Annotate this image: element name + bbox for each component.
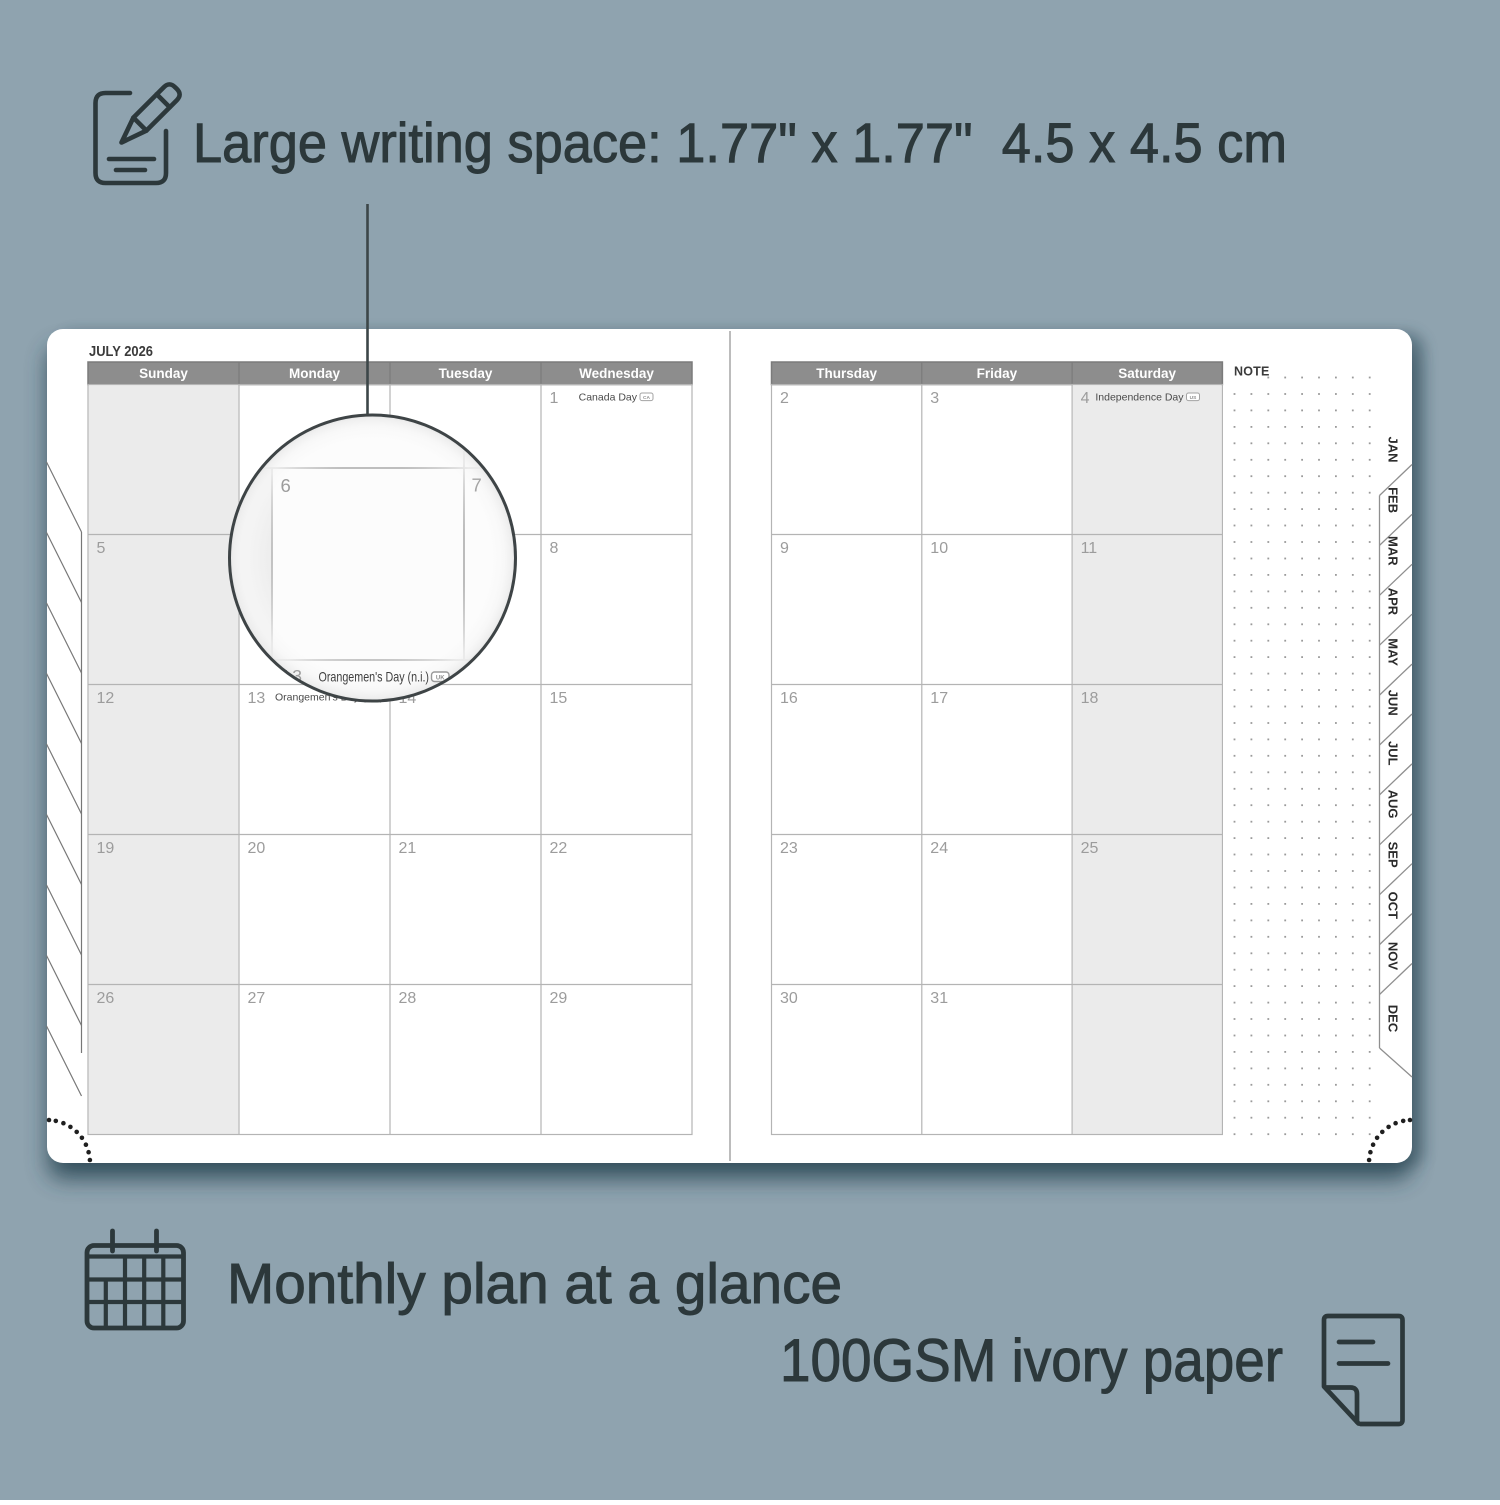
svg-text:JUN: JUN: [1386, 690, 1401, 716]
svg-text:23: 23: [780, 840, 798, 857]
svg-text:18: 18: [1081, 690, 1099, 707]
svg-text:JULY 2026: JULY 2026: [89, 343, 153, 360]
svg-text:8: 8: [550, 540, 559, 557]
svg-text:JUL: JUL: [1386, 741, 1401, 766]
svg-text:12: 12: [97, 690, 115, 707]
svg-text:Thursday: Thursday: [816, 366, 877, 381]
svg-text:Monthly plan at a glance: Monthly plan at a glance: [227, 1252, 842, 1316]
svg-text:9: 9: [780, 540, 789, 557]
svg-text:MAY: MAY: [1386, 638, 1401, 666]
svg-text:MAR: MAR: [1386, 536, 1401, 566]
svg-text:2: 2: [780, 390, 789, 407]
svg-text:NOV: NOV: [1386, 942, 1401, 971]
svg-text:CA: CA: [643, 395, 650, 401]
svg-text:Sunday: Sunday: [139, 366, 188, 381]
svg-text:Monday: Monday: [289, 366, 340, 381]
svg-text:Large writing space: 1.77" x 1: Large writing space: 1.77" x 1.77" 4.5 x…: [193, 111, 1287, 174]
svg-text:24: 24: [930, 840, 948, 857]
svg-text:17: 17: [930, 690, 948, 707]
svg-text:22: 22: [550, 840, 568, 857]
svg-text:21: 21: [399, 840, 417, 857]
svg-text:19: 19: [97, 840, 115, 857]
svg-text:US: US: [1190, 395, 1197, 401]
svg-text:SEP: SEP: [1386, 842, 1401, 868]
svg-text:29: 29: [550, 990, 568, 1007]
svg-text:27: 27: [248, 990, 266, 1007]
svg-text:4: 4: [1081, 390, 1090, 407]
svg-text:7: 7: [472, 475, 482, 496]
svg-text:Tuesday: Tuesday: [439, 366, 493, 381]
svg-text:28: 28: [399, 990, 417, 1007]
svg-text:Independence Day: Independence Day: [1095, 392, 1184, 404]
svg-text:NOTE: NOTE: [1234, 365, 1270, 379]
svg-text:JAN: JAN: [1386, 436, 1401, 462]
svg-text:15: 15: [550, 690, 568, 707]
svg-text:OCT: OCT: [1386, 892, 1401, 920]
svg-text:Saturday: Saturday: [1118, 366, 1176, 381]
svg-text:11: 11: [1081, 540, 1098, 557]
svg-text:16: 16: [780, 690, 798, 707]
svg-text:20: 20: [248, 840, 266, 857]
svg-text:Friday: Friday: [977, 366, 1018, 381]
svg-text:6: 6: [281, 475, 291, 496]
svg-text:Wednesday: Wednesday: [579, 366, 654, 381]
svg-text:26: 26: [97, 990, 115, 1007]
svg-text:Orangemen's Day (n.i.): Orangemen's Day (n.i.): [319, 670, 430, 685]
svg-text:DEC: DEC: [1386, 1005, 1401, 1033]
svg-text:Canada Day: Canada Day: [579, 392, 638, 404]
svg-text:13: 13: [248, 690, 266, 707]
svg-text:APR: APR: [1386, 588, 1401, 616]
svg-text:3: 3: [930, 390, 939, 407]
svg-text:FEB: FEB: [1386, 487, 1401, 513]
svg-text:5: 5: [97, 540, 106, 557]
svg-text:AUG: AUG: [1386, 790, 1401, 819]
svg-text:31: 31: [930, 990, 948, 1007]
svg-text:1: 1: [550, 390, 559, 407]
svg-text:30: 30: [780, 990, 798, 1007]
svg-text:10: 10: [930, 540, 948, 557]
svg-text:100GSM ivory paper: 100GSM ivory paper: [780, 1327, 1283, 1394]
svg-text:25: 25: [1081, 840, 1099, 857]
